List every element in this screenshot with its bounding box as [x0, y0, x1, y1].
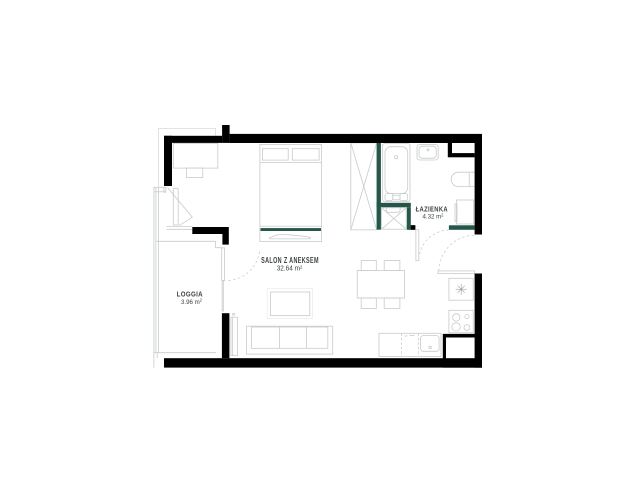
svg-text:4.32 m2: 4.32 m2	[422, 212, 444, 220]
svg-text:3.96 m2: 3.96 m2	[181, 298, 203, 306]
svg-text:SALON Z ANEKSEM: SALON Z ANEKSEM	[261, 257, 319, 265]
svg-text:32.64 m2: 32.64 m2	[277, 264, 303, 272]
